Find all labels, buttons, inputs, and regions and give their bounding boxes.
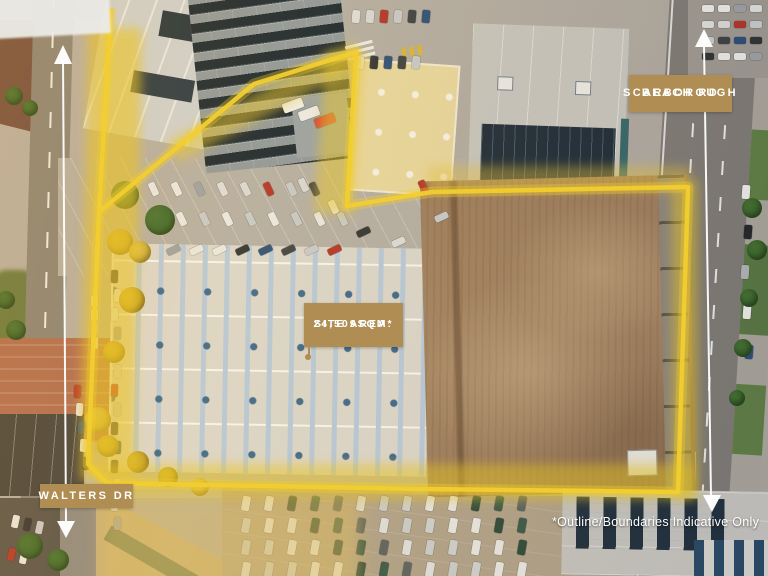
car — [718, 5, 730, 12]
car — [702, 5, 714, 12]
car — [379, 10, 388, 24]
grass-strip — [748, 129, 768, 201]
tree — [5, 87, 23, 105]
building-corner — [694, 540, 768, 576]
car — [741, 265, 750, 280]
car — [393, 10, 402, 24]
tree — [158, 467, 178, 487]
car — [80, 439, 88, 452]
overexposed-corner — [0, 0, 111, 39]
car — [78, 421, 86, 434]
car — [734, 21, 746, 28]
car — [383, 56, 392, 70]
tree — [742, 198, 762, 218]
tree — [747, 240, 767, 260]
car — [91, 295, 98, 307]
tree — [85, 407, 111, 433]
car — [702, 37, 714, 44]
car — [111, 460, 118, 473]
car — [111, 308, 118, 321]
car — [82, 457, 90, 470]
car — [111, 422, 118, 435]
tree — [6, 320, 26, 340]
car — [114, 327, 121, 340]
tree — [119, 287, 145, 313]
solar-roof-building — [187, 0, 358, 173]
concrete-strip — [658, 175, 692, 492]
car — [744, 225, 753, 240]
car — [76, 403, 84, 416]
site-area-line: 24,509SQM* — [313, 317, 393, 333]
car — [718, 37, 730, 44]
car — [365, 10, 374, 24]
tree — [17, 533, 43, 559]
car — [114, 403, 121, 416]
cream-roof-building — [348, 59, 461, 198]
tree — [145, 205, 175, 235]
rooftop-unit — [497, 76, 513, 91]
car — [397, 56, 406, 70]
car — [355, 56, 364, 70]
road-label-line: WALTERS DR — [39, 490, 135, 502]
car — [702, 21, 714, 28]
car — [114, 517, 121, 530]
car — [734, 37, 746, 44]
car — [91, 323, 98, 335]
tree — [734, 339, 752, 357]
car — [750, 53, 762, 60]
car — [750, 21, 762, 28]
car — [734, 53, 746, 60]
car — [351, 10, 360, 24]
car — [702, 53, 714, 60]
car — [421, 10, 430, 24]
car — [74, 385, 82, 398]
site-area-label: SITE AREA: 24,509SQM* — [304, 303, 403, 347]
tree — [191, 478, 209, 496]
small-shed — [627, 449, 658, 476]
rooftop-unit — [575, 81, 591, 96]
tree — [740, 289, 758, 307]
car — [91, 337, 98, 349]
tree — [111, 181, 139, 209]
car — [407, 10, 416, 24]
car — [111, 270, 118, 283]
road-label-line: BEACH RD — [642, 86, 719, 102]
warehouse-roof — [108, 243, 430, 477]
car — [750, 37, 762, 44]
car — [750, 5, 762, 12]
tree — [127, 451, 149, 473]
car — [734, 5, 746, 12]
car — [91, 309, 98, 321]
site-area-leader-dot — [305, 354, 311, 360]
disclaimer-text: *Outline/Boundaries Indicative Only — [552, 515, 759, 529]
tree — [47, 549, 69, 571]
tree — [129, 241, 151, 263]
tree — [22, 100, 38, 116]
tree — [97, 435, 119, 457]
tree — [729, 390, 745, 406]
aerial-photo: SCARBOROUGH BEACH RD WALTERS DR SITE ARE… — [0, 0, 768, 576]
vacant-lot — [420, 175, 696, 498]
road-label-scarborough-beach-rd: SCARBOROUGH BEACH RD — [629, 75, 732, 112]
car — [411, 56, 420, 70]
solar-panel-array — [130, 70, 195, 102]
tree — [103, 341, 125, 363]
dirt-furrow — [450, 181, 465, 497]
car — [718, 53, 730, 60]
car — [742, 185, 751, 200]
car — [718, 21, 730, 28]
car — [111, 384, 118, 397]
car — [369, 56, 378, 70]
road-label-walters-dr: WALTERS DR — [40, 484, 133, 508]
car — [114, 365, 121, 378]
